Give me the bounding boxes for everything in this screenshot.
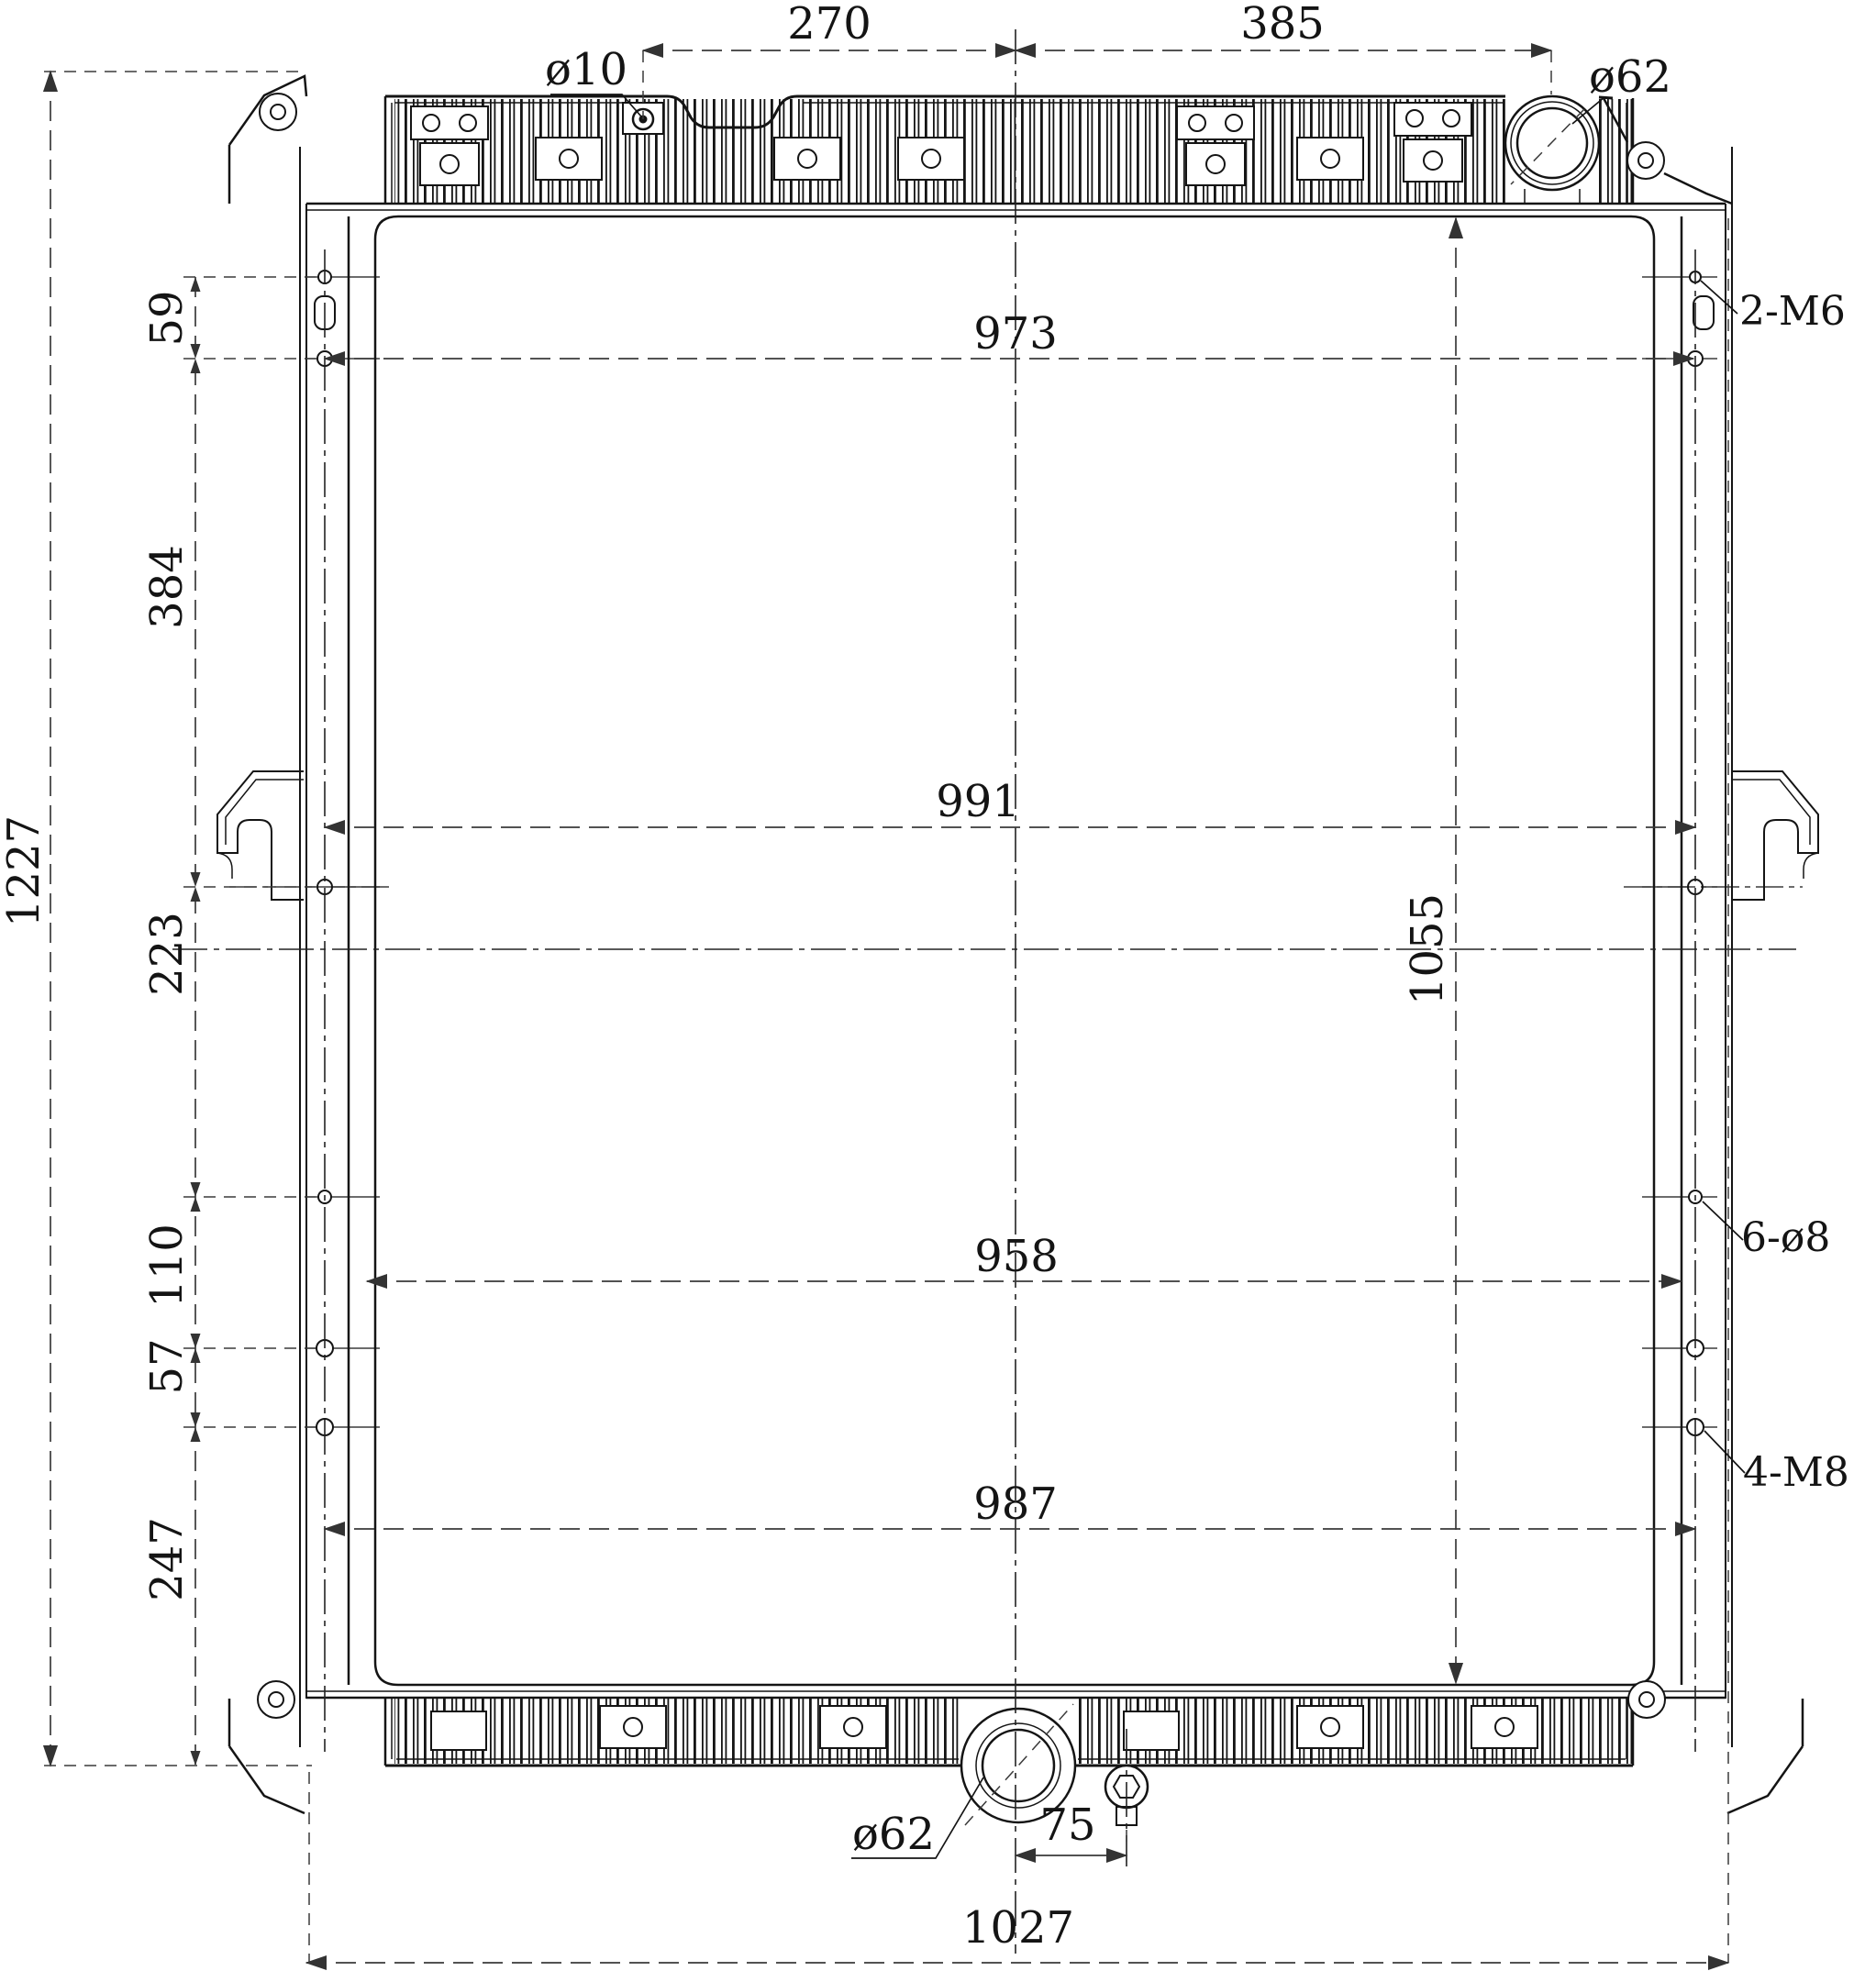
bottom-tank-clip (600, 1706, 666, 1748)
callout-4-m8: 4-M8 (1743, 1449, 1849, 1496)
bottom-tank-clip (820, 1706, 886, 1748)
dim-247: 247 (141, 1517, 193, 1601)
bottom-tank-clip (1124, 1711, 1179, 1750)
left-side-frame (300, 147, 380, 1747)
dim-75: 75 (1039, 1799, 1095, 1851)
dim-991: 991 (936, 776, 1020, 827)
right-side-frame (1642, 147, 1732, 1747)
dim-59: 59 (141, 290, 193, 346)
bottom-tank (385, 1699, 1633, 1825)
dim-987: 987 (973, 1478, 1058, 1530)
callout-dia62-bottom: ø62 (852, 1809, 935, 1860)
dim-958: 958 (974, 1231, 1059, 1282)
dim-223: 223 (141, 912, 193, 996)
dim-384: 384 (141, 545, 193, 629)
bottom-right-corner-mount (1628, 1681, 1803, 1813)
callout-dia62-top: ø62 (1589, 51, 1671, 103)
dim-973: 973 (973, 308, 1058, 360)
top-left-corner-mount (229, 76, 306, 204)
dia8-leader (1703, 1201, 1743, 1240)
top-tank-clip (411, 106, 488, 185)
dim-385: 385 (1240, 0, 1325, 50)
callout-dia10: ø10 (545, 44, 627, 95)
dim-57: 57 (141, 1338, 193, 1394)
top-tank-clip (1297, 138, 1363, 180)
engineering-drawing-canvas: 270 385 ø10 ø62 973 991 958 987 1227 105… (0, 0, 1876, 1982)
top-tank-clip (898, 138, 964, 180)
radiator-drawing: 270 385 ø10 ø62 973 991 958 987 1227 105… (0, 0, 1876, 1982)
top-tank-clip (1394, 103, 1471, 182)
top-tank (385, 96, 1633, 204)
dim-1027: 1027 (962, 1902, 1074, 1954)
dim-110: 110 (141, 1224, 193, 1308)
left-frame-holes (305, 271, 380, 1435)
top-tank-clip (1177, 106, 1254, 185)
extension-lines (44, 50, 1728, 1963)
callout-6-dia8: 6-ø8 (1741, 1214, 1830, 1261)
top-tank-clip (774, 138, 840, 180)
callout-2-m6: 2-M6 (1739, 288, 1846, 335)
dim-1055: 1055 (1402, 893, 1453, 1005)
top-tank-clip (536, 138, 602, 180)
bottom-tank-clip (1297, 1706, 1363, 1748)
dim-270: 270 (787, 0, 871, 50)
bottom-tank-clip (1471, 1706, 1537, 1748)
bottom-left-corner-mount (229, 1681, 305, 1813)
dim-1227: 1227 (0, 815, 50, 927)
right-m6-slot (1693, 296, 1714, 329)
bottom-tank-clip (431, 1711, 486, 1750)
